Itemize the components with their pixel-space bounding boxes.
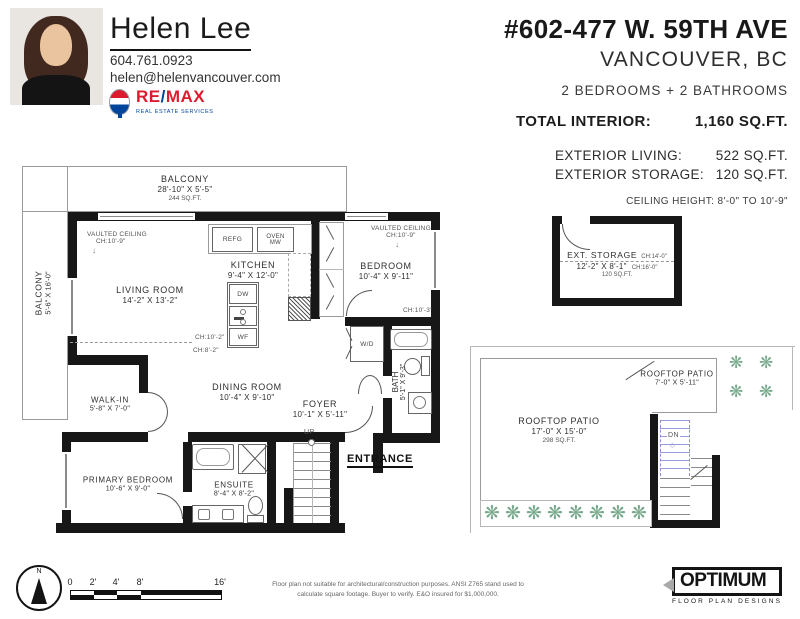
toilet-tank <box>421 356 430 376</box>
down-arrow-icon: ↓ <box>92 246 96 255</box>
foyer-label: FOYER 10'-1" X 5'-11" <box>293 399 347 419</box>
wine-fridge: WF <box>229 328 257 346</box>
window-line <box>347 216 386 217</box>
dn-label: DN <box>667 432 680 439</box>
bedroom-label: BEDROOM 10'-4" X 9'-11" <box>359 261 413 281</box>
plant-icon: ❋ <box>729 355 743 372</box>
scale-seg <box>94 595 117 599</box>
plant-icon: ❋ <box>547 504 563 523</box>
dn-diamond-icon: ◇ <box>670 442 675 449</box>
listing-header: #602-477 W. 59TH AVE VANCOUVER, BC 2 BED… <box>504 14 788 207</box>
bath-sink <box>413 396 426 409</box>
listing-address: #602-477 W. 59TH AVE <box>504 14 788 45</box>
burner-icon <box>240 319 246 325</box>
washer-dryer: W/D <box>350 326 384 362</box>
ensuite-label: ENSUITE 8'-4" X 8'-2" <box>214 481 254 498</box>
plant-icon: ❋ <box>589 504 605 523</box>
patio-boundary <box>792 346 793 410</box>
balcony-left-label: BALCONY 5'-6" X 16'-0" <box>34 271 53 316</box>
door-arc <box>157 493 183 519</box>
bathtub-inner <box>394 332 428 347</box>
remax-wordmark: RE/MAX <box>136 87 205 106</box>
ceiling-note: CH:10'-3" <box>403 307 433 314</box>
living-room-label: LIVING ROOM 14'-2" X 13'-2" <box>116 285 184 305</box>
scale-tick: 8' <box>137 577 144 587</box>
bath-label: BATH 5'-1" X 9'-3" <box>391 364 407 400</box>
ensuite-tub-inner <box>196 448 230 466</box>
plant-icon: ❋ <box>759 384 773 401</box>
closet-divider <box>319 269 344 270</box>
dining-room-label: DINING ROOM 10'-4" X 9'-10" <box>212 382 282 402</box>
wall <box>139 365 148 393</box>
door-arc <box>370 375 382 394</box>
plant-icon: ❋ <box>505 504 521 523</box>
primary-bedroom-label: PRIMARY BEDROOM 10'-6" X 9'-0" <box>83 476 173 493</box>
walk-in-label: WALK-IN 5'-8" X 7'-0" <box>90 396 130 413</box>
logo-arrow-icon <box>663 578 674 592</box>
plant-icon: ❋ <box>610 504 626 523</box>
ext-storage-label: EXT. STORAGE CH:14'-0" 12'-2" X 8'-1" CH… <box>567 250 667 278</box>
rooftop-patio-small-label: ROOFTOP PATIO 7'-0" X 5'-11" <box>640 370 713 387</box>
kitchen-upper-cabinet <box>288 253 311 297</box>
entrance-label: ENTRANCE <box>347 453 413 468</box>
stair-newel <box>308 439 315 446</box>
wall <box>552 216 560 306</box>
cooktop <box>229 306 257 326</box>
wall <box>68 355 148 365</box>
agent-phone: 604.761.0923 <box>110 53 193 68</box>
agent-photo-body <box>22 75 90 105</box>
plant-icon: ❋ <box>526 504 542 523</box>
agent-photo-face <box>40 24 72 66</box>
optimum-logo-title: OPTIMUM <box>680 570 774 592</box>
wall <box>62 432 148 442</box>
exterior-storage-label: EXTERIOR STORAGE: <box>555 167 704 182</box>
wall <box>267 442 276 533</box>
compass-needle <box>31 578 47 604</box>
wall <box>552 298 682 306</box>
compass-icon: N <box>16 565 62 611</box>
ensuite-sink <box>222 509 234 520</box>
exterior-living-row: EXTERIOR LIVING: 522 SQ.FT. <box>555 148 788 163</box>
plant-icon: ❋ <box>759 355 773 372</box>
optimum-logo: OPTIMUM FLOOR PLAN DESIGNS <box>672 567 782 605</box>
compass-north-label: N <box>36 568 41 575</box>
wall <box>188 432 345 442</box>
agent-email: helen@helenvancouver.com <box>110 70 281 85</box>
wall <box>373 433 440 443</box>
disclaimer-line-2: calculate square footage. Buyer to verif… <box>253 590 543 600</box>
window-line <box>100 216 193 217</box>
optimum-logo-box: OPTIMUM <box>672 567 782 596</box>
kitchen-label: KITCHEN 9'-4" X 12'-0" <box>228 260 278 280</box>
door-arc <box>562 224 590 250</box>
disclaimer-line-1: Floor plan not suitable for architectura… <box>253 580 543 590</box>
door-arc <box>346 290 372 316</box>
exterior-living-value: 522 SQ.FT. <box>716 148 788 163</box>
wall <box>183 506 192 533</box>
window-line <box>434 232 436 288</box>
stairs-lower-flight <box>660 478 690 520</box>
oven-microwave: OVEN MW <box>257 227 294 252</box>
wall <box>284 488 293 533</box>
ceiling-note: CH:8'-2" <box>193 347 219 354</box>
ceiling-height-note: CEILING HEIGHT: 8'-0" TO 10'-9" <box>504 196 788 207</box>
storage-door-gap <box>562 216 590 224</box>
scale-tick: 0 <box>67 577 72 587</box>
wall <box>650 520 720 528</box>
scale-seg <box>117 595 141 599</box>
wall <box>383 398 392 434</box>
plant-icon: ❋ <box>484 504 500 523</box>
floor-plan-flyer: Helen Lee 604.761.0923 helen@helenvancou… <box>0 0 800 619</box>
plant-icon: ❋ <box>729 384 743 401</box>
remax-logo: RE/MAX REAL ESTATE SERVICES <box>109 88 214 115</box>
disclaimer: Floor plan not suitable for architectura… <box>253 580 543 600</box>
wall <box>183 442 192 492</box>
plant-icon: ❋ <box>631 504 647 523</box>
ceiling-note: CH:10'-2" <box>195 334 225 341</box>
patio-edge <box>716 358 717 413</box>
exterior-living-label: EXTERIOR LIVING: <box>555 148 682 163</box>
agent-photo <box>10 8 103 105</box>
listing-city: VANCOUVER, BC <box>504 48 788 72</box>
up-label: UP <box>304 429 315 436</box>
scale-seg <box>141 595 221 599</box>
patio-boundary <box>470 346 471 533</box>
optimum-logo-subtitle: FLOOR PLAN DESIGNS <box>672 598 782 605</box>
exterior-storage-row: EXTERIOR STORAGE: 120 SQ.FT. <box>555 167 788 182</box>
plant-icon: ❋ <box>568 504 584 523</box>
door-arc <box>148 412 168 432</box>
scale-bar: 0 2' 4' 8' 16' <box>70 577 230 603</box>
wall <box>674 216 682 306</box>
patio-edge <box>480 358 481 500</box>
scale-tick: 2' <box>90 577 97 587</box>
patio-edge <box>652 412 716 413</box>
remax-balloon-icon <box>109 89 130 115</box>
stair-rail <box>293 443 294 523</box>
scale-tick: 16' <box>214 577 226 587</box>
vaulted-ceiling-note: VAULTED CEILING CH:10'-9" <box>87 231 147 245</box>
vaulted-ceiling-note: VAULTED CEILING CH:10'-9" <box>371 225 431 239</box>
ensuite-toilet-tank <box>247 515 264 523</box>
door-arc <box>345 406 373 433</box>
burner-icon <box>240 309 246 315</box>
balcony-top-label: BALCONY 28'-10" X 5'-5" 244 SQ.FT. <box>157 174 212 202</box>
kitchen-pantry-hatch <box>288 297 311 321</box>
agent-name: Helen Lee <box>110 12 251 51</box>
window-line <box>71 280 73 334</box>
wall <box>68 212 77 278</box>
ensuite-toilet-bowl <box>248 496 263 515</box>
dishwasher: DW <box>229 284 257 304</box>
wall <box>345 317 440 326</box>
scale-seg <box>71 595 94 599</box>
rooftop-patio-large-label: ROOFTOP PATIO 17'-0" X 15'-0" 298 SQ.FT. <box>518 416 599 444</box>
listing-beds-baths: 2 BEDROOMS + 2 BATHROOMS <box>504 83 788 98</box>
remax-tagline: REAL ESTATE SERVICES <box>136 109 214 115</box>
scale-bar-graphic <box>70 590 222 600</box>
exterior-storage-value: 120 SQ.FT. <box>716 167 788 182</box>
down-arrow-icon: ↓ <box>395 240 399 249</box>
fridge: REFG <box>212 227 253 252</box>
ceiling-change-line <box>70 342 192 343</box>
patio-boundary <box>470 346 795 347</box>
wall <box>56 523 345 533</box>
total-interior-row: TOTAL INTERIOR: 1,160 SQ.FT. <box>516 113 788 130</box>
total-interior-label: TOTAL INTERIOR: <box>516 113 651 130</box>
wall <box>330 442 339 533</box>
window-line <box>65 454 67 508</box>
patio-edge <box>480 358 716 359</box>
total-interior-value: 1,160 SQ.FT. <box>695 113 788 130</box>
door-arc <box>148 392 168 412</box>
scale-tick: 4' <box>113 577 120 587</box>
door-arc <box>358 375 370 394</box>
stair-stringer <box>312 443 313 523</box>
wall <box>712 455 720 528</box>
ensuite-sink <box>198 509 210 520</box>
